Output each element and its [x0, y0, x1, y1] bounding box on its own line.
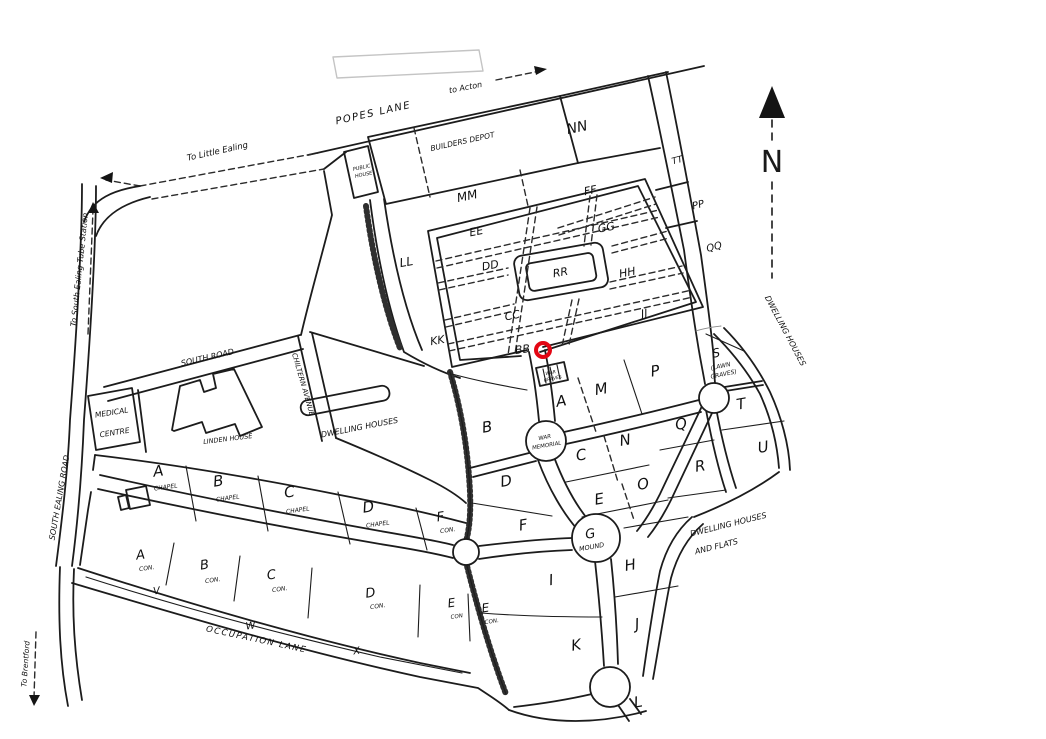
- section-qq-label: QQ: [705, 240, 723, 255]
- section-n-label: N: [618, 430, 632, 450]
- plot-v-label: V: [152, 585, 161, 597]
- brentford-road: [59, 567, 82, 706]
- section-o-label: O: [636, 474, 651, 494]
- faint-building-outline: [333, 50, 483, 78]
- con-e1-sub-label: CON: [450, 613, 463, 621]
- section-hh-label: HH: [618, 265, 637, 281]
- medical-centre-label-2: CENTRE: [99, 426, 130, 440]
- section-p-label: P: [649, 361, 662, 380]
- con-d-label: D: [365, 585, 377, 601]
- section-nn-label: NN: [565, 118, 589, 138]
- acton-arrow-line: [496, 71, 540, 80]
- west-circle-to-mound-drive: [479, 538, 572, 559]
- north-label: N: [761, 145, 783, 180]
- to-acton-label: to Acton: [448, 80, 483, 95]
- section-u-label: U: [756, 437, 770, 457]
- section-jj-label: JJ: [638, 307, 649, 321]
- little-ealing-arrowhead-icon: [100, 172, 113, 183]
- s-section-small-note: [696, 326, 721, 331]
- section-gg-label: GG: [597, 220, 616, 236]
- con-b-sub-label: CON.: [205, 576, 221, 585]
- little-ealing-road: [106, 153, 324, 199]
- occupation-lane-label: OCCUPATION LANE: [205, 624, 308, 655]
- west-gate-chapel-building: [118, 486, 150, 510]
- plot-x-label: X: [352, 645, 362, 657]
- chapel-f-sub-label: CON.: [440, 526, 456, 535]
- builders-depot-label: BUILDERS DEPOT: [430, 130, 497, 153]
- linden-house-label: LINDEN HOUSE: [203, 432, 254, 446]
- medical-centre-box: [88, 388, 146, 452]
- con-c-sub-label: CON.: [272, 585, 288, 594]
- t-u-west-drive: [706, 408, 736, 492]
- section-k-label: K: [570, 635, 584, 655]
- section-r-label: R: [693, 456, 706, 476]
- acton-arrowhead-icon: [534, 66, 547, 75]
- section-f-label: F: [517, 515, 529, 534]
- con-a-label: A: [134, 547, 146, 563]
- south-east-road: [643, 517, 703, 679]
- flats-boundary: [694, 472, 779, 517]
- section-bb-label: BB: [514, 342, 531, 357]
- main-west-drive: [98, 475, 453, 558]
- east-junction-circle: [699, 383, 729, 413]
- section-ee-label: EE: [468, 224, 484, 239]
- section-e-label: E: [593, 489, 606, 508]
- section-dd-label: DD: [481, 258, 500, 274]
- section-ll-label: LL: [399, 254, 415, 270]
- chapel-c-sub-label: CHAPEL: [286, 505, 310, 515]
- section-l-label: L: [632, 692, 643, 711]
- section-c-label: C: [574, 445, 588, 465]
- section-m-label: M: [593, 379, 609, 399]
- section-s-label: S: [711, 345, 722, 360]
- south-junction-circle: [590, 667, 630, 707]
- cemetery-plan-page: N POPES LANE to Acton To Little Ealing B…: [0, 0, 1046, 739]
- south-ealing-road-label: SOUTH EALING ROAD: [48, 454, 72, 540]
- chapel-block-west-edge: [80, 455, 95, 565]
- west-junction-circle: [453, 539, 479, 565]
- section-j-label: J: [630, 615, 640, 634]
- section-i-label: I: [547, 571, 555, 590]
- con-e2-sub-label: CON.: [484, 618, 499, 626]
- section-h-label: H: [623, 555, 637, 575]
- section-q-label: Q: [674, 414, 689, 434]
- north-arrowhead-icon: [759, 86, 785, 118]
- section-mm-label: MM: [456, 187, 480, 205]
- popes-lane-label: POPES LANE: [335, 100, 413, 127]
- section-a-label: A: [554, 391, 568, 411]
- medical-centre-label-1: MEDICAL: [94, 405, 129, 419]
- chapel-d-sub-label: CHAPEL: [366, 519, 390, 529]
- chapel-b-label: B: [212, 471, 225, 490]
- to-tube-station-label: To South Ealing Tube Station: [69, 212, 90, 327]
- tube-station-arrowhead-icon: [88, 202, 99, 213]
- to-little-ealing-label: To Little Ealing: [186, 140, 249, 163]
- map-canvas: N POPES LANE to Acton To Little Ealing B…: [0, 0, 1046, 739]
- south-road-label: SOUTH ROAD: [180, 347, 235, 368]
- con-b-label: B: [199, 557, 210, 573]
- con-e2-label: E: [481, 601, 491, 616]
- brentford-arrow-line: [34, 632, 36, 698]
- dwelling-flats-label-2: AND FLATS: [693, 537, 739, 557]
- linden-house-building: [172, 369, 262, 436]
- chapel-f-label: F: [436, 510, 446, 526]
- con-d-sub-label: CON.: [370, 602, 386, 611]
- section-t-label: T: [735, 394, 749, 414]
- occupation-lane-road: [72, 568, 509, 710]
- mound-to-south-drive: [595, 559, 618, 666]
- section-ff-label: FF: [583, 183, 599, 198]
- section-pp-label: PP: [691, 198, 706, 212]
- con-a-sub-label: CON.: [139, 564, 155, 573]
- section-kk-label: KK: [429, 333, 446, 348]
- section-rr-label: RR: [552, 265, 569, 280]
- section-b-label: B: [480, 417, 493, 437]
- to-brentford-label: To Brentford: [19, 640, 31, 687]
- section-d-label: D: [499, 471, 514, 491]
- dwelling-block-south-edge: [336, 438, 466, 503]
- section-cc-label: CC: [504, 308, 522, 324]
- west-hatched-boundary: [450, 372, 506, 694]
- dwelling-houses-east-label: DWELLING HOUSES: [763, 294, 808, 368]
- west-boundary-line: [450, 372, 506, 694]
- con-c-label: C: [266, 567, 278, 583]
- chapel-d-label: D: [361, 497, 375, 516]
- con-e1-label: E: [447, 596, 457, 611]
- brentford-arrowhead-icon: [29, 695, 40, 706]
